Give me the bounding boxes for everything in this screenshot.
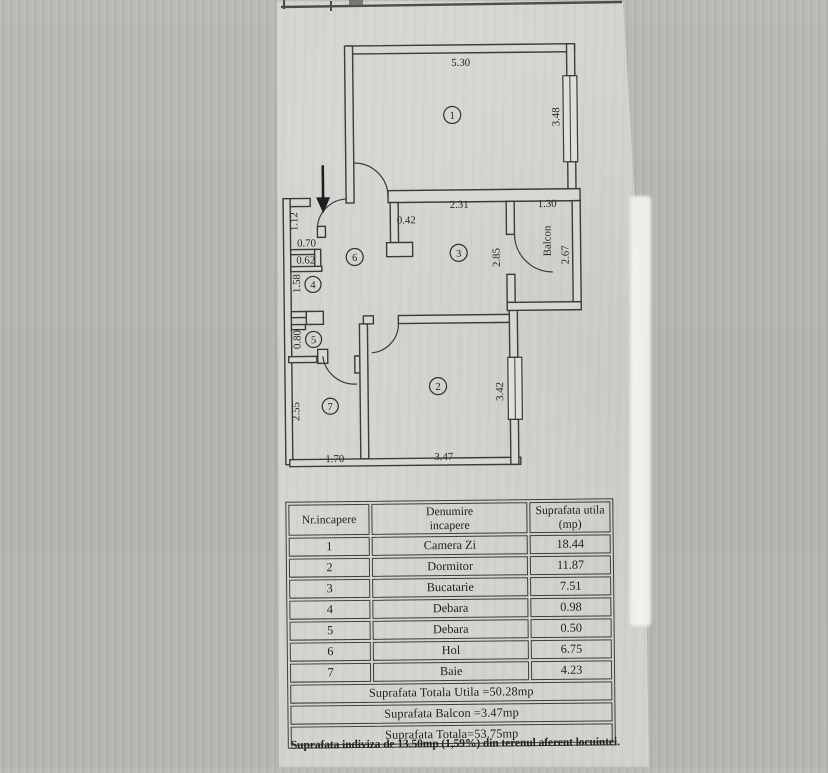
table-row: 5Debara0.50 <box>290 618 612 640</box>
room-number-debara5: 5 <box>311 335 316 346</box>
dim-balcony-width: 1.30 <box>538 198 557 210</box>
table-row: 3Bucatarie7.51 <box>289 576 611 598</box>
dim-bath-width: 1.70 <box>325 453 344 465</box>
dim-kitchen-width: 2.31 <box>450 199 469 211</box>
room-number-living: 1 <box>450 111 455 122</box>
footer-note: Suprafata indiviza de 13.50mp (1,59%) di… <box>291 734 621 752</box>
dim-room2-width: 3.47 <box>434 451 454 463</box>
scanned-paper: 1 2 3 4 5 6 7 5.30 3.48 1.12 0.70 0.62 1… <box>0 0 828 768</box>
room-number-hall: 6 <box>352 253 357 264</box>
dim-room1-width: 5.30 <box>451 57 470 69</box>
dim-balcony-height: 2.67 <box>560 245 572 265</box>
room-number-kitchen: 3 <box>456 249 461 260</box>
dim-debara4-height: 1.58 <box>291 274 303 293</box>
dim-room2-height: 3.42 <box>494 382 506 401</box>
dim-entry-wall: 1.12 <box>288 212 300 231</box>
room-number-bedroom: 2 <box>435 382 440 393</box>
dim-kitchen-height: 2.85 <box>491 248 503 267</box>
room-number-bath: 7 <box>328 402 333 413</box>
dim-kitchen-niche: 0.42 <box>397 214 416 226</box>
total-utila: Suprafata Totala Utila =50.28mp <box>290 681 612 703</box>
dim-bath-height: 2.55 <box>290 402 302 421</box>
room-areas-table: Nr.incapere Denumireincapere Suprafata u… <box>285 498 616 748</box>
door-arc-bedroom <box>371 324 398 353</box>
table-row: 6Hol6.75 <box>290 639 612 661</box>
total-row-balcon: Suprafata Balcon =3.47mp <box>290 702 612 724</box>
dim-niche-width: 0.62 <box>296 254 315 266</box>
header-area: Suprafata utila(mp) <box>530 501 611 533</box>
total-balcon: Suprafata Balcon =3.47mp <box>290 702 612 724</box>
floor-plan: 1 2 3 4 5 6 7 5.30 3.48 1.12 0.70 0.62 1… <box>268 28 633 492</box>
door-arc-living <box>354 163 388 197</box>
table-row: 7Baie4.23 <box>290 660 612 682</box>
balcony-label: Balcon <box>541 225 553 256</box>
room-numbers: 1 2 3 4 5 6 7 <box>303 106 469 414</box>
table-header-row: Nr.incapere Denumireincapere Suprafata u… <box>288 501 610 535</box>
room-number-debara4: 4 <box>310 280 316 291</box>
table-row: 4Debara0.98 <box>289 597 611 619</box>
table-row: 1Camera Zi18.44 <box>289 534 611 556</box>
dim-entry-opening: 0.70 <box>297 237 316 249</box>
header-nr: Nr.incapere <box>288 504 369 536</box>
dim-room1-height: 3.48 <box>550 107 562 126</box>
table-row: 2Dormitor11.87 <box>289 555 611 577</box>
dim-debara5-height: 0.80 <box>291 330 303 349</box>
total-row-utila: Suprafata Totala Utila =50.28mp <box>290 681 612 703</box>
header-name: Denumireincapere <box>371 502 527 535</box>
paper-edge-highlight <box>630 196 651 626</box>
